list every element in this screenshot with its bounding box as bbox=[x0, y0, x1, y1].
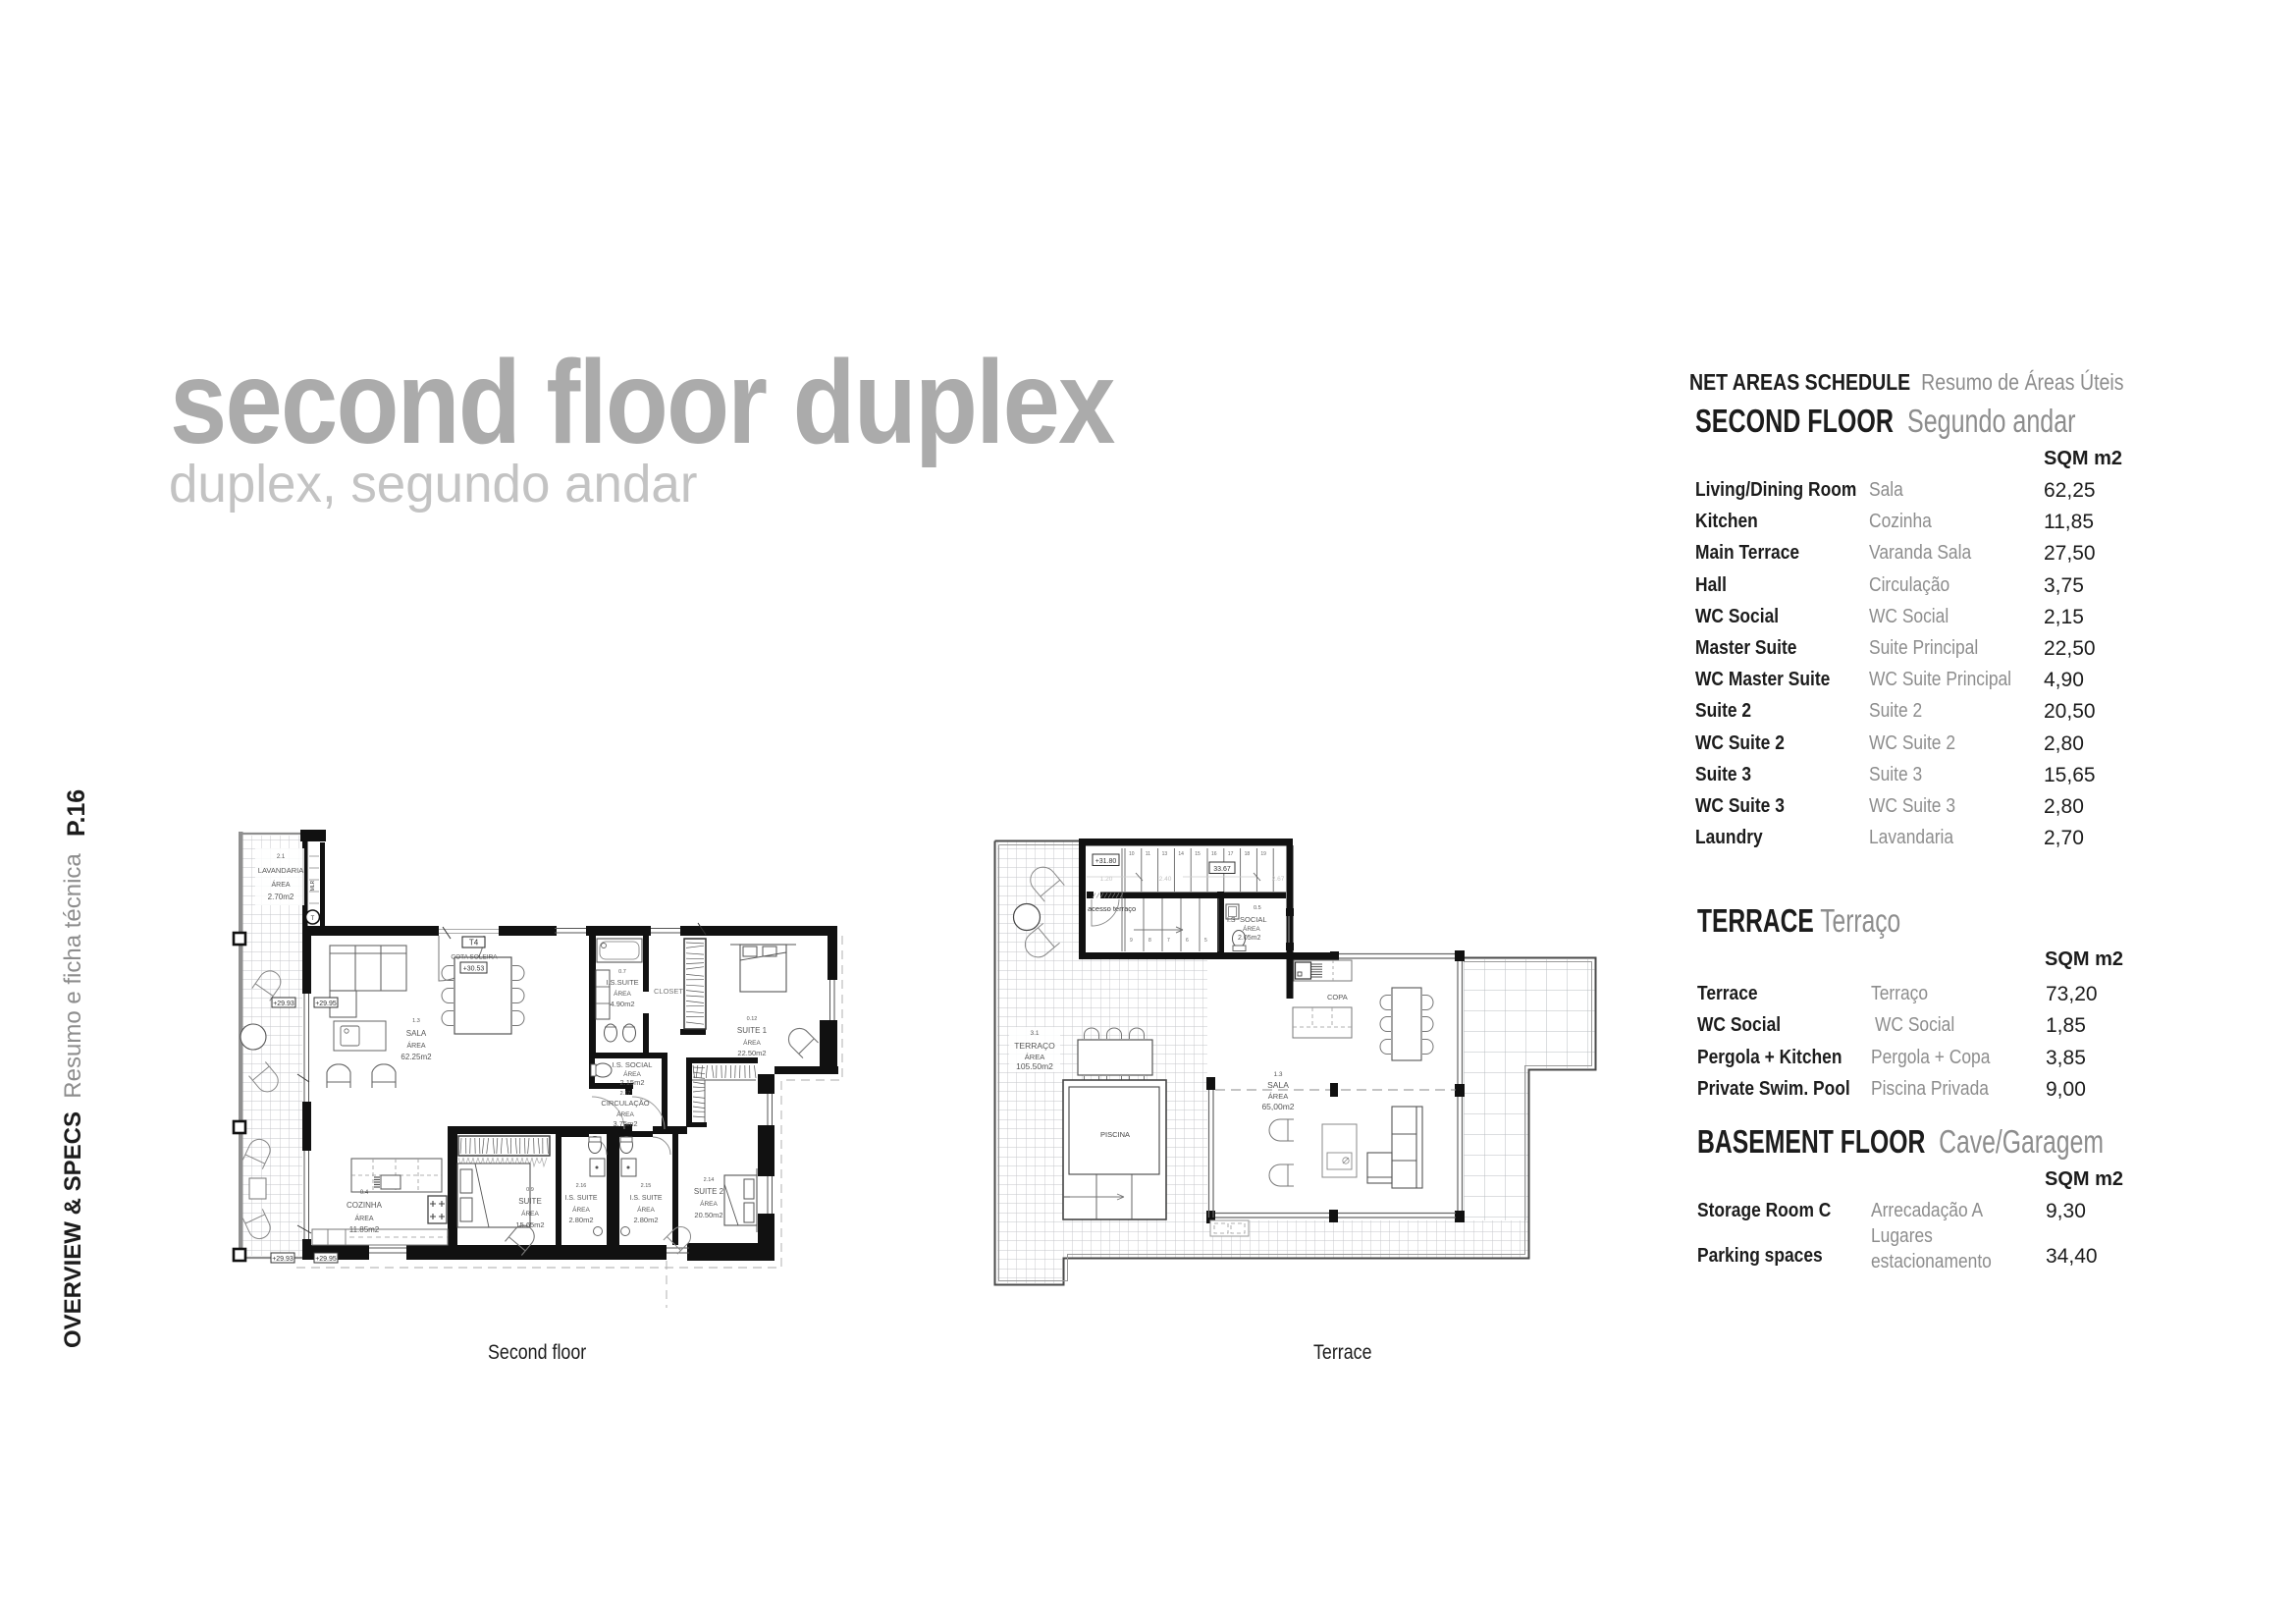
svg-text:SALA: SALA bbox=[1267, 1080, 1289, 1090]
svg-text:ÁREA: ÁREA bbox=[1025, 1053, 1044, 1061]
svg-text:0.9: 0.9 bbox=[526, 1187, 534, 1193]
svg-text:105.50m2: 105.50m2 bbox=[1016, 1061, 1053, 1071]
svg-text:62.25m2: 62.25m2 bbox=[400, 1053, 432, 1061]
svg-text:CLOSET: CLOSET bbox=[654, 987, 683, 996]
svg-text:2.70m2: 2.70m2 bbox=[268, 893, 294, 901]
svg-text:2.80m2: 2.80m2 bbox=[568, 1216, 593, 1224]
svg-text:acesso terraço: acesso terraço bbox=[1088, 904, 1136, 913]
svg-text:2.15m2: 2.15m2 bbox=[619, 1078, 644, 1087]
svg-text:ÁREA: ÁREA bbox=[354, 1214, 373, 1222]
svg-text:0.5: 0.5 bbox=[1254, 905, 1261, 911]
svg-text:T: T bbox=[311, 916, 315, 922]
svg-text:0.7: 0.7 bbox=[618, 969, 626, 975]
svg-text:I.S. SUITE: I.S. SUITE bbox=[629, 1195, 662, 1202]
svg-text:20.50m2: 20.50m2 bbox=[694, 1211, 722, 1219]
svg-text:TERRAÇO: TERRAÇO bbox=[1014, 1041, 1055, 1051]
svg-text:+29.95: +29.95 bbox=[315, 1001, 337, 1007]
svg-text:9: 9 bbox=[1130, 938, 1133, 944]
svg-text:2.14: 2.14 bbox=[704, 1177, 715, 1183]
svg-text:65,00m2: 65,00m2 bbox=[1261, 1102, 1294, 1111]
svg-text:PISCINA: PISCINA bbox=[1100, 1130, 1130, 1139]
svg-text:15.65m2: 15.65m2 bbox=[515, 1220, 544, 1229]
svg-text:COPA: COPA bbox=[1327, 993, 1348, 1001]
svg-text:LAVANDARIA: LAVANDARIA bbox=[258, 866, 303, 875]
svg-text:I.S: I.S bbox=[1227, 917, 1236, 924]
svg-text:6: 6 bbox=[1186, 938, 1189, 944]
svg-text:2.67: 2.67 bbox=[1272, 876, 1285, 883]
svg-text:+29.95: +29.95 bbox=[315, 1256, 337, 1263]
svg-text:19: 19 bbox=[1260, 851, 1266, 857]
svg-text:16: 16 bbox=[1211, 851, 1217, 857]
svg-text:COZINHA: COZINHA bbox=[347, 1201, 383, 1210]
svg-text:10: 10 bbox=[1129, 851, 1135, 857]
svg-text:ÁREA: ÁREA bbox=[406, 1041, 425, 1050]
svg-text:+29.93: +29.93 bbox=[273, 1001, 294, 1007]
svg-text:MLR: MLR bbox=[310, 880, 316, 891]
svg-text:COTA SOLEIRA: COTA SOLEIRA bbox=[451, 954, 498, 961]
svg-text:+31.80: +31.80 bbox=[1095, 858, 1117, 865]
svg-text:14: 14 bbox=[1178, 851, 1184, 857]
svg-text:ÁREA: ÁREA bbox=[700, 1199, 718, 1208]
svg-text:CIRCULAÇÃO: CIRCULAÇÃO bbox=[601, 1099, 649, 1108]
svg-text:ÁREA: ÁREA bbox=[743, 1038, 761, 1047]
svg-text:4.90m2: 4.90m2 bbox=[610, 1000, 634, 1008]
svg-text:0.12: 0.12 bbox=[747, 1016, 758, 1022]
svg-text:11.85m2: 11.85m2 bbox=[349, 1225, 380, 1234]
svg-text:T4: T4 bbox=[469, 939, 479, 947]
svg-text:ÁREA: ÁREA bbox=[616, 1110, 634, 1118]
svg-text:7: 7 bbox=[1167, 938, 1170, 944]
svg-text:2.16: 2.16 bbox=[576, 1183, 587, 1189]
svg-text:I.S.SUITE: I.S.SUITE bbox=[606, 978, 638, 987]
svg-text:SOCIAL: SOCIAL bbox=[1240, 915, 1267, 924]
svg-text:SUITE: SUITE bbox=[518, 1197, 542, 1206]
svg-text:ÁREA: ÁREA bbox=[623, 1069, 641, 1078]
svg-text:SUITE 1: SUITE 1 bbox=[737, 1026, 768, 1035]
svg-text:8: 8 bbox=[1148, 938, 1151, 944]
svg-text:11: 11 bbox=[1146, 851, 1150, 857]
svg-text:ÁREA: ÁREA bbox=[1243, 924, 1260, 933]
svg-text:ÁREA: ÁREA bbox=[614, 989, 631, 998]
svg-text:3.1: 3.1 bbox=[1030, 1030, 1039, 1037]
svg-text:ÁREA: ÁREA bbox=[1268, 1092, 1288, 1101]
svg-text:1.3: 1.3 bbox=[1273, 1071, 1282, 1078]
svg-text:ÁREA: ÁREA bbox=[572, 1205, 590, 1214]
svg-text:+29.93: +29.93 bbox=[272, 1256, 294, 1263]
svg-text:2.17: 2.17 bbox=[620, 1091, 631, 1097]
svg-text:ÁREA: ÁREA bbox=[521, 1209, 539, 1218]
svg-text:18: 18 bbox=[1245, 851, 1251, 857]
svg-text:ÁREA: ÁREA bbox=[637, 1205, 655, 1214]
svg-text:15: 15 bbox=[1195, 851, 1201, 857]
svg-text:SALA: SALA bbox=[406, 1029, 427, 1038]
svg-text:17: 17 bbox=[1228, 851, 1234, 857]
svg-text:2.40: 2.40 bbox=[1159, 876, 1172, 883]
svg-text:SUITE 2: SUITE 2 bbox=[694, 1187, 724, 1196]
svg-text:I.S. SOCIAL: I.S. SOCIAL bbox=[613, 1060, 653, 1069]
svg-text:1.3: 1.3 bbox=[412, 1018, 420, 1024]
svg-text:2.05m2: 2.05m2 bbox=[1238, 935, 1260, 942]
svg-text:5: 5 bbox=[1204, 938, 1207, 944]
svg-text:0.4: 0.4 bbox=[360, 1190, 369, 1196]
svg-text:22.50m2: 22.50m2 bbox=[737, 1049, 766, 1057]
svg-text:13: 13 bbox=[1162, 851, 1168, 857]
svg-text:3.75m2: 3.75m2 bbox=[613, 1119, 637, 1128]
svg-text:ÁREA: ÁREA bbox=[271, 880, 290, 889]
svg-text:2.1: 2.1 bbox=[277, 854, 286, 860]
svg-text:33.67: 33.67 bbox=[1213, 866, 1231, 873]
svg-text:+30.53: +30.53 bbox=[463, 966, 485, 973]
svg-text:2.80m2: 2.80m2 bbox=[633, 1216, 658, 1224]
svg-text:I.S. SUITE: I.S. SUITE bbox=[564, 1195, 597, 1202]
svg-text:2.15: 2.15 bbox=[641, 1183, 652, 1189]
